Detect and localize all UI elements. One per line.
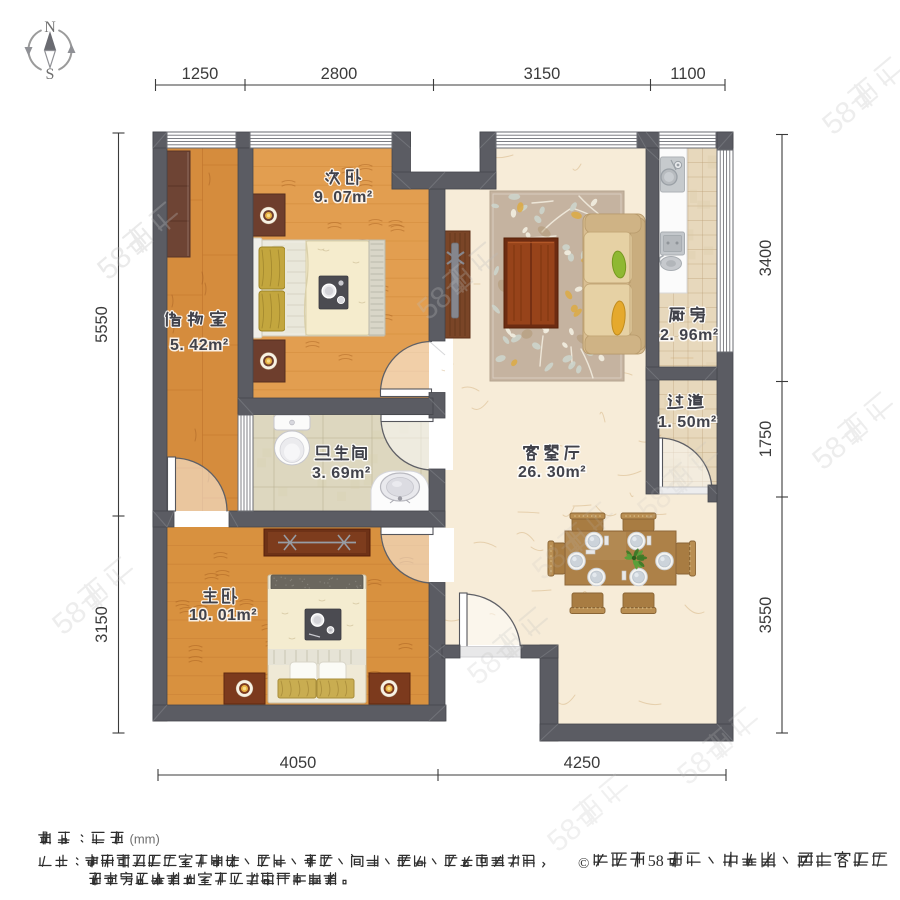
svg-text:3. 69m²: 3. 69m² [312,465,371,482]
svg-text:3150: 3150 [524,65,561,83]
svg-text:58: 58 [648,853,664,870]
svg-text:9. 07m²: 9. 07m² [314,189,373,206]
svg-text:1. 50m²: 1. 50m² [658,414,717,431]
svg-text:10. 01m²: 10. 01m² [189,607,257,624]
svg-text:5550: 5550 [93,306,111,343]
svg-text:58: 58 [46,595,93,642]
svg-text:3150: 3150 [93,606,111,643]
svg-text:58: 58 [91,240,138,287]
svg-text:26. 30m²: 26. 30m² [518,464,586,481]
svg-text:N: N [44,19,56,36]
svg-text:58: 58 [806,430,853,477]
svg-text:1100: 1100 [670,65,705,83]
svg-text:3550: 3550 [757,597,775,634]
svg-text:©: © [578,856,589,872]
svg-text:2. 96m²: 2. 96m² [660,327,719,344]
svg-text:1250: 1250 [182,65,219,83]
svg-text:4250: 4250 [564,754,601,772]
svg-text:58: 58 [541,812,588,859]
svg-text:3400: 3400 [757,240,775,277]
svg-text:58: 58 [816,95,863,142]
svg-text:5. 42m²: 5. 42m² [170,337,229,354]
svg-text:(mm): (mm) [130,832,160,847]
svg-text:4050: 4050 [280,754,317,772]
svg-text:2800: 2800 [321,65,358,83]
svg-text:S: S [46,66,55,83]
svg-text:58: 58 [671,745,718,792]
svg-text:1750: 1750 [757,421,775,458]
